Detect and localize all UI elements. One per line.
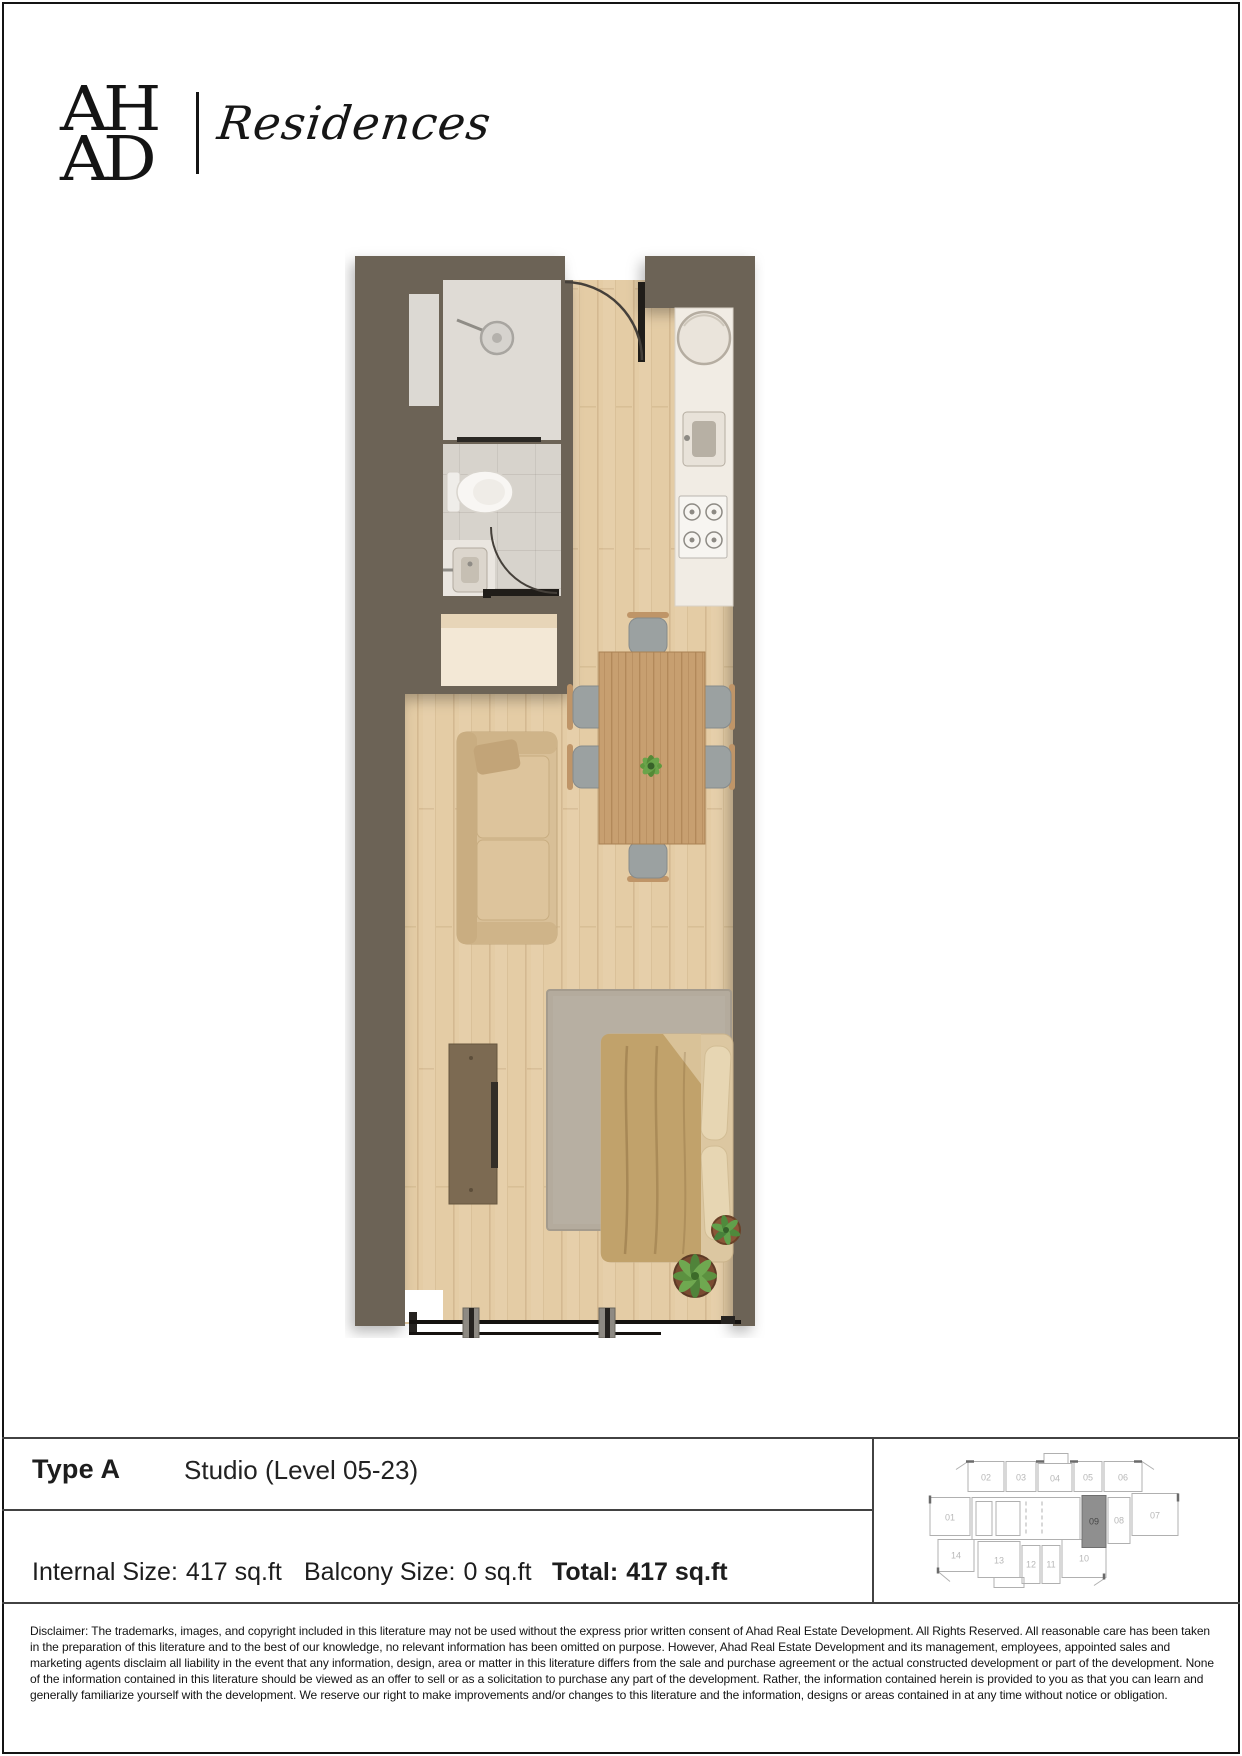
wardrobe-shade [441, 614, 557, 628]
key-plan-unit-label-highlighted: 09 [1089, 1517, 1099, 1527]
window-mullion [599, 1308, 615, 1338]
kitchen-sink-icon [683, 412, 725, 466]
tv-icon [491, 1082, 498, 1168]
shower-threshold [457, 437, 541, 442]
unit-type-description: Studio (Level 05-23) [184, 1455, 418, 1486]
blanket [601, 1034, 701, 1262]
key-plan-unit-label: 08 [1114, 1516, 1124, 1526]
storage-niche [409, 294, 439, 406]
dining-chair [627, 842, 669, 882]
key-plan: 01 02 03 04 05 06 07 08 09 10 11 12 13 1… [920, 1448, 1190, 1596]
brand-monogram: AH AD [60, 84, 156, 184]
balcony-size-label: Balcony Size: [304, 1558, 455, 1586]
key-plan-unit-label: 12 [1026, 1560, 1036, 1570]
divider-keyplan [872, 1437, 874, 1604]
toilet-icon [447, 471, 513, 513]
table-plant-icon [640, 755, 662, 777]
balcony-size: Balcony Size:0 sq.ft [304, 1558, 532, 1587]
wash-basin-icon [443, 540, 495, 596]
window-mullion [463, 1308, 479, 1338]
divider-bottom [2, 1602, 1240, 1604]
key-plan-unit-label: 07 [1150, 1511, 1160, 1521]
brand-wordmark: Residences [215, 96, 495, 150]
internal-size-value: 417 sq.ft [186, 1558, 282, 1586]
total-size-value: 417 sq.ft [626, 1558, 727, 1586]
internal-size: Internal Size:417 sq.ft [32, 1558, 282, 1587]
sofa [457, 732, 557, 944]
logo-divider [196, 92, 199, 174]
dining-table [599, 652, 705, 844]
disclaimer-text: Disclaimer: The trademarks, images, and … [30, 1624, 1216, 1704]
kitchen [675, 308, 733, 606]
plant-icon [673, 1254, 717, 1298]
floor-plan [345, 246, 765, 1338]
key-plan-unit-label: 11 [1046, 1560, 1055, 1570]
gas-hob-icon [679, 496, 727, 558]
brand-logo: AH AD Residences [60, 70, 480, 190]
key-plan-unit-label: 03 [1016, 1473, 1026, 1483]
key-plan-unit-label: 05 [1083, 1473, 1093, 1483]
internal-size-label: Internal Size: [32, 1558, 178, 1586]
key-plan-unit-label: 14 [951, 1551, 961, 1561]
divider-mid [2, 1509, 873, 1511]
unit-type-label: Type A [32, 1454, 120, 1485]
divider-top [2, 1437, 1240, 1439]
key-plan-unit-label: 06 [1118, 1473, 1128, 1483]
brand-monogram-bottom: AD [60, 134, 156, 184]
shower-room-floor [443, 280, 561, 440]
pillow [701, 1045, 732, 1140]
refrigerator-icon [678, 312, 730, 364]
key-plan-unit-label: 02 [981, 1473, 991, 1483]
balcony-size-value: 0 sq.ft [463, 1558, 531, 1586]
key-plan-unit-label: 01 [945, 1513, 955, 1523]
total-size: Total:417 sq.ft [552, 1558, 728, 1587]
key-plan-unit-label: 04 [1050, 1474, 1060, 1484]
total-size-label: Total: [552, 1558, 618, 1586]
key-plan-unit-label: 13 [994, 1556, 1004, 1566]
key-plan-unit-label: 10 [1079, 1554, 1089, 1564]
tv-console [449, 1044, 498, 1204]
